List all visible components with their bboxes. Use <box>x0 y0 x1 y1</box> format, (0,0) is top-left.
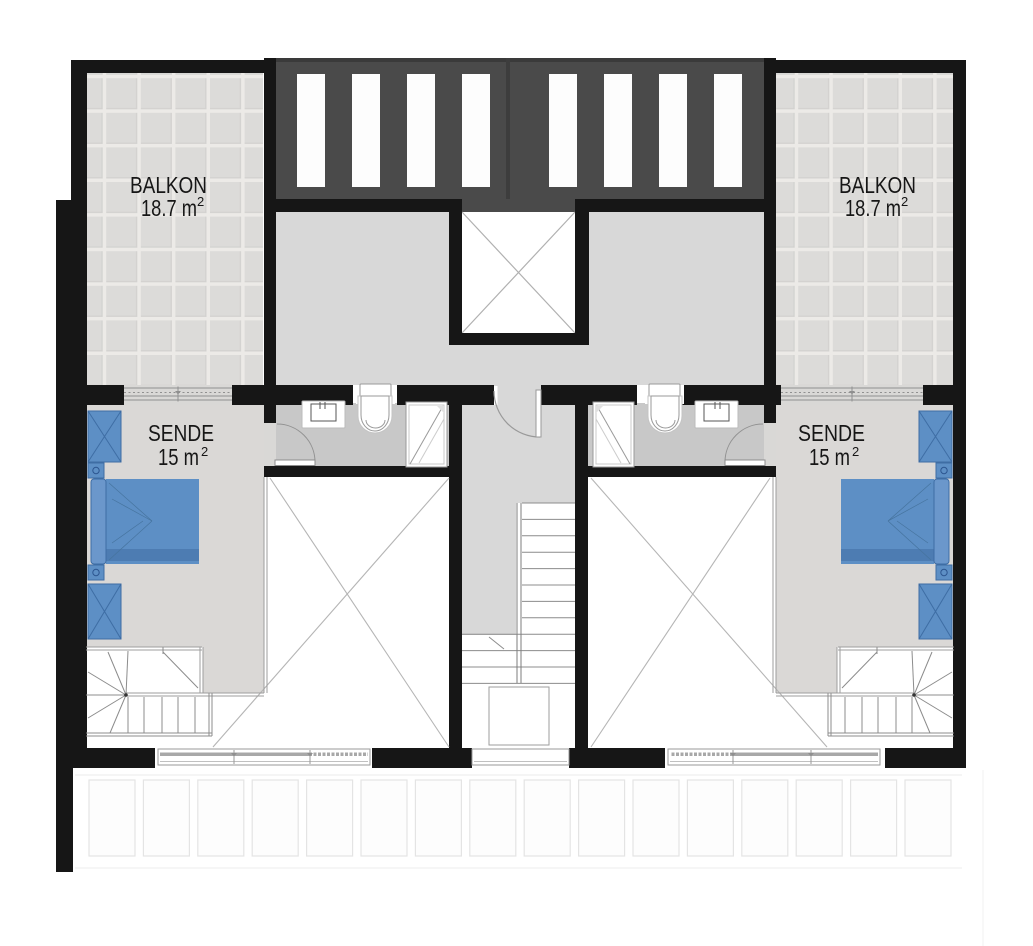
svg-text:2: 2 <box>852 444 859 459</box>
svg-text:18.7 m: 18.7 m <box>141 195 197 221</box>
svg-text:2: 2 <box>201 444 208 459</box>
svg-text:SENDE: SENDE <box>798 420 865 446</box>
svg-text:15 m: 15 m <box>158 444 199 470</box>
svg-text:18.7 m: 18.7 m <box>845 195 901 221</box>
svg-text:2: 2 <box>197 194 204 209</box>
svg-text:15 m: 15 m <box>809 444 850 470</box>
svg-text:SENDE: SENDE <box>148 420 214 446</box>
svg-text:2: 2 <box>901 194 908 209</box>
